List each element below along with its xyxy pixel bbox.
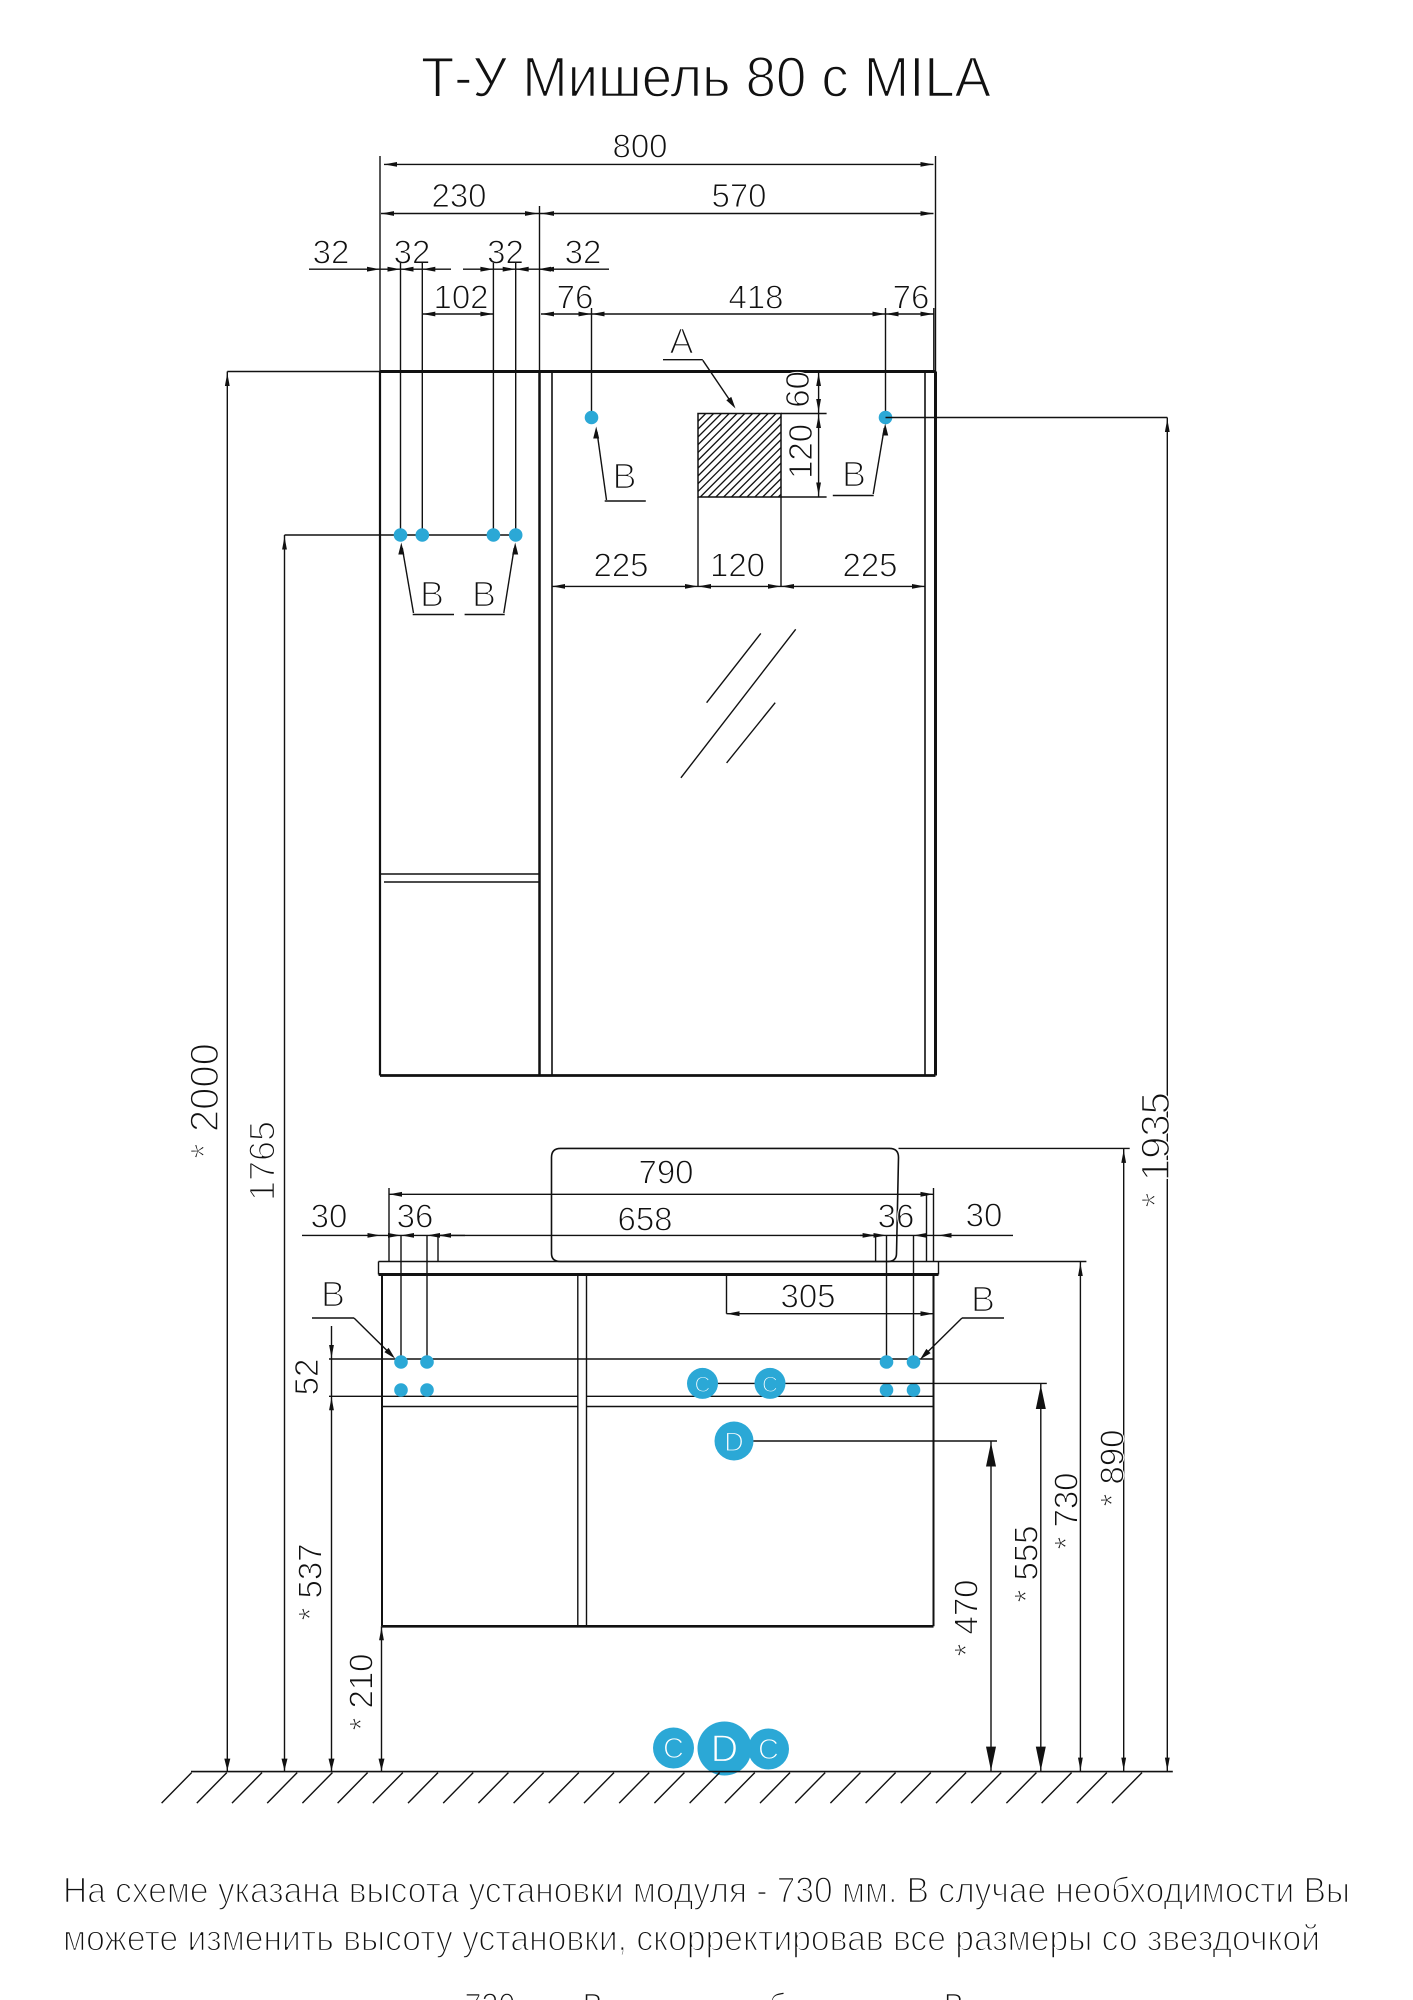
svg-text:C: C (663, 1733, 684, 1765)
svg-text:B: B (612, 456, 636, 497)
svg-text:* 537: * 537 (292, 1543, 329, 1620)
svg-text:C: C (695, 1372, 711, 1397)
svg-text:Т-У Мишель 80 с MILA: Т-У Мишель 80 с MILA (421, 46, 991, 110)
svg-text:76: 76 (893, 279, 930, 316)
svg-text:30: 30 (966, 1197, 1003, 1234)
svg-text:36: 36 (878, 1198, 915, 1235)
svg-text:225: 225 (842, 547, 897, 584)
svg-text:52: 52 (288, 1359, 325, 1396)
svg-text:D: D (724, 1427, 744, 1457)
svg-text:* 1935: * 1935 (1134, 1092, 1178, 1208)
svg-text:36: 36 (397, 1198, 434, 1235)
svg-text:305: 305 (780, 1278, 835, 1315)
svg-text:120: 120 (782, 424, 819, 479)
svg-text:* 210: * 210 (343, 1653, 380, 1730)
svg-text:30: 30 (311, 1198, 348, 1235)
svg-text:790: 790 (638, 1154, 693, 1191)
svg-text:800: 800 (612, 128, 667, 165)
svg-text:1765: 1765 (242, 1121, 283, 1201)
svg-text:C: C (762, 1372, 778, 1397)
svg-text:570: 570 (711, 177, 766, 214)
svg-text:76: 76 (557, 279, 594, 316)
svg-text:B: B (971, 1279, 995, 1320)
svg-text:C: C (758, 1734, 779, 1766)
svg-text:B: B (321, 1274, 345, 1315)
svg-text:32: 32 (565, 234, 602, 271)
svg-text:B: B (472, 574, 496, 615)
svg-text:D: D (711, 1729, 738, 1771)
svg-text:высота установки модуля - 730: высота установки модуля - 730 мм. В случ… (75, 1986, 1240, 2000)
svg-text:225: 225 (593, 547, 648, 584)
svg-text:* 730: * 730 (1048, 1472, 1085, 1549)
svg-text:230: 230 (431, 177, 486, 214)
svg-text:* 555: * 555 (1008, 1525, 1045, 1602)
svg-text:32: 32 (394, 234, 431, 271)
svg-text:60: 60 (779, 371, 816, 408)
svg-text:102: 102 (433, 279, 488, 316)
svg-text:можете изменить высоту установ: можете изменить высоту установки, скорре… (63, 1918, 1320, 1959)
svg-text:B: B (420, 574, 444, 615)
svg-text:120: 120 (710, 547, 765, 584)
svg-text:A: A (669, 321, 693, 362)
svg-text:* 470: * 470 (948, 1579, 985, 1656)
svg-text:B: B (842, 454, 866, 495)
svg-text:32: 32 (313, 234, 350, 271)
svg-text:32: 32 (487, 234, 524, 271)
svg-text:* 890: * 890 (1094, 1429, 1131, 1506)
svg-text:658: 658 (617, 1201, 672, 1238)
svg-text:* 2000: * 2000 (183, 1043, 227, 1159)
svg-text:На схеме указана высота устано: На схеме указана высота установки модуля… (63, 1870, 1350, 1911)
svg-text:418: 418 (728, 279, 783, 316)
